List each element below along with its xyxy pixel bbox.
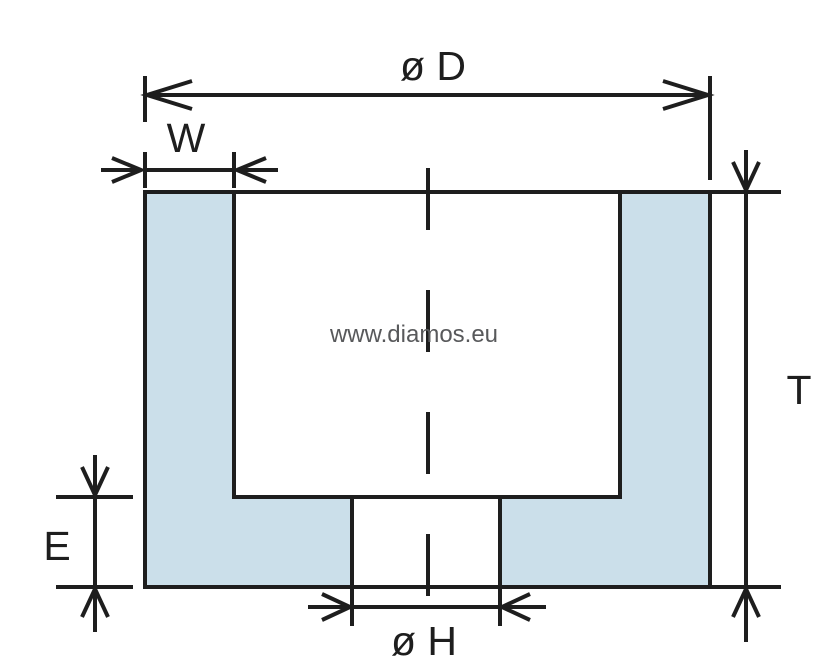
wheel-section-fill <box>145 192 710 587</box>
height-label: T <box>786 367 811 413</box>
dimension-base-thickness: E <box>43 455 133 632</box>
bore-diameter-label: ø H <box>391 618 457 664</box>
dimension-rim-width: W <box>101 115 278 188</box>
wheel-right-wall-and-base <box>500 192 710 587</box>
dimension-outer-diameter: ø D <box>145 43 710 180</box>
rim-width-label: W <box>167 115 206 161</box>
dimension-height: T <box>733 150 812 642</box>
diagram-drawing: ø D W T <box>0 0 827 670</box>
outer-diameter-label: ø D <box>400 43 466 89</box>
watermark-text: www.diamos.eu <box>329 321 498 348</box>
wheel-left-wall-and-base <box>145 192 352 587</box>
dimension-bore-diameter: ø H <box>308 594 546 664</box>
base-thickness-label: E <box>43 523 70 569</box>
grinding-wheel-cross-section-diagram: ø D W T <box>0 0 827 670</box>
